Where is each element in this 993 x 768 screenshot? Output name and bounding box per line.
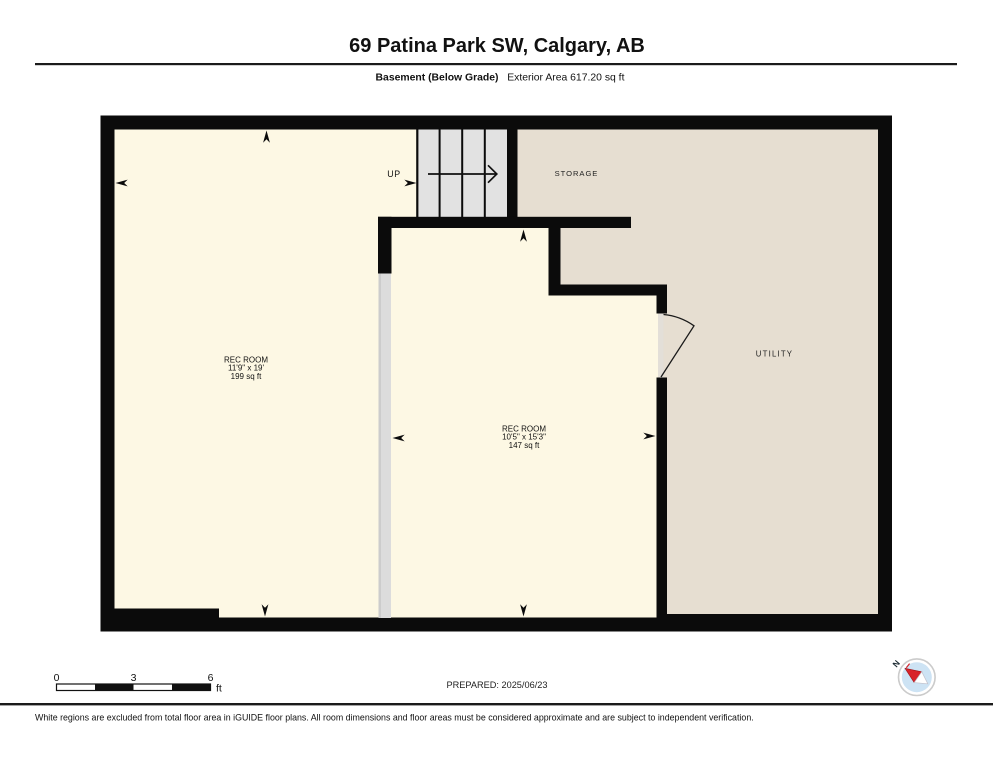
svg-text:UP: UP: [387, 169, 401, 179]
svg-text:UTILITY: UTILITY: [756, 350, 793, 359]
svg-text:147 sq ft: 147 sq ft: [509, 441, 540, 450]
svg-text:PREPARED: 2025/06/23: PREPARED: 2025/06/23: [447, 680, 548, 690]
svg-text:69 Patina Park SW, Calgary, AB: 69 Patina Park SW, Calgary, AB: [349, 35, 645, 57]
svg-text:199 sq ft: 199 sq ft: [231, 372, 262, 381]
svg-text:3: 3: [131, 672, 137, 684]
svg-text:Basement (Below Grade) Exter: Basement (Below Grade) Exterior Area 617…: [376, 73, 625, 84]
svg-text:STORAGE: STORAGE: [555, 169, 599, 178]
svg-text:White regions are excluded fro: White regions are excluded from total fl…: [35, 713, 754, 723]
svg-text:ft: ft: [216, 683, 222, 695]
svg-text:0: 0: [54, 672, 60, 684]
svg-text:6: 6: [208, 672, 214, 684]
